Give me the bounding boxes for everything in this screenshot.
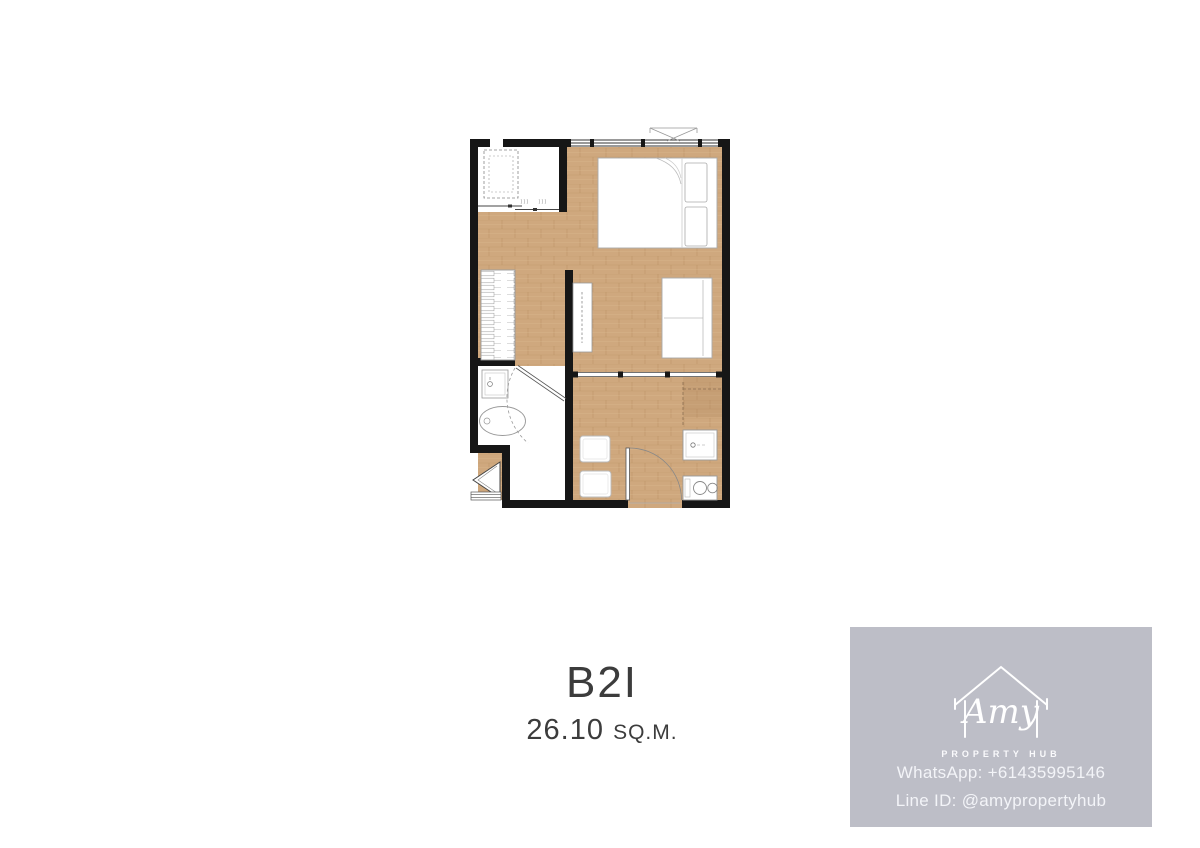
brand-contacts: WhatsApp: +61435995146 Line ID: @amyprop… (850, 759, 1152, 815)
kitchen-sink-icon (683, 430, 717, 460)
wall-balcony-divider (559, 139, 567, 212)
wall-top-left (470, 139, 490, 147)
bathtub-icon (480, 407, 526, 436)
bedroom-window (567, 128, 722, 147)
kitchen-counter-top (683, 377, 722, 417)
unit-area: 26.10 SQ.M. (460, 714, 744, 747)
vanity-sink-icon (482, 370, 508, 398)
wall-bath-stub (478, 445, 510, 453)
wall-left (470, 139, 478, 453)
unit-area-unit: SQ.M. (613, 721, 678, 744)
door-leaf (626, 448, 630, 500)
line-id-contact: Line ID: @amypropertyhub (850, 787, 1152, 815)
chair-icon (580, 471, 611, 497)
branding-panel: Amy PROPERTY HUB WhatsApp: +61435995146 … (850, 627, 1152, 827)
wall-shower-left (502, 453, 510, 500)
tv-console-icon (573, 283, 592, 352)
louver-bar-icon (471, 492, 501, 500)
pillow-icon (685, 207, 707, 246)
chair-icon (580, 436, 610, 462)
logo-name-text: Amy (960, 692, 1040, 732)
house-logo-icon: Amy (936, 657, 1066, 743)
partition-window (573, 372, 722, 378)
wall-bath-kitchen (565, 358, 573, 500)
wall-hall-living (565, 270, 573, 358)
whatsapp-contact: WhatsApp: +61435995146 (850, 759, 1152, 787)
sofa-icon (662, 278, 712, 358)
unit-name: B2I (460, 658, 744, 708)
wardrobe-icon (481, 270, 515, 360)
logo-tagline: PROPERTY HUB (850, 749, 1152, 759)
unit-area-value: 26.10 (526, 714, 604, 746)
flyer-page: B2I 26.10 SQ.M. Amy PROPERTY HUB WhatsAp… (0, 0, 1200, 848)
brand-logo: Amy (850, 657, 1152, 748)
wall-bottom-left (502, 500, 628, 508)
wall-top-balcony (503, 139, 559, 147)
wall-right (722, 139, 730, 508)
bedroom (598, 158, 717, 248)
floorplan-drawing (460, 122, 730, 512)
stove-icon (683, 476, 717, 500)
pillow-icon (685, 163, 707, 202)
floorplan (460, 122, 730, 512)
wall-bottom-right (682, 500, 722, 508)
shower-floor (510, 453, 565, 500)
